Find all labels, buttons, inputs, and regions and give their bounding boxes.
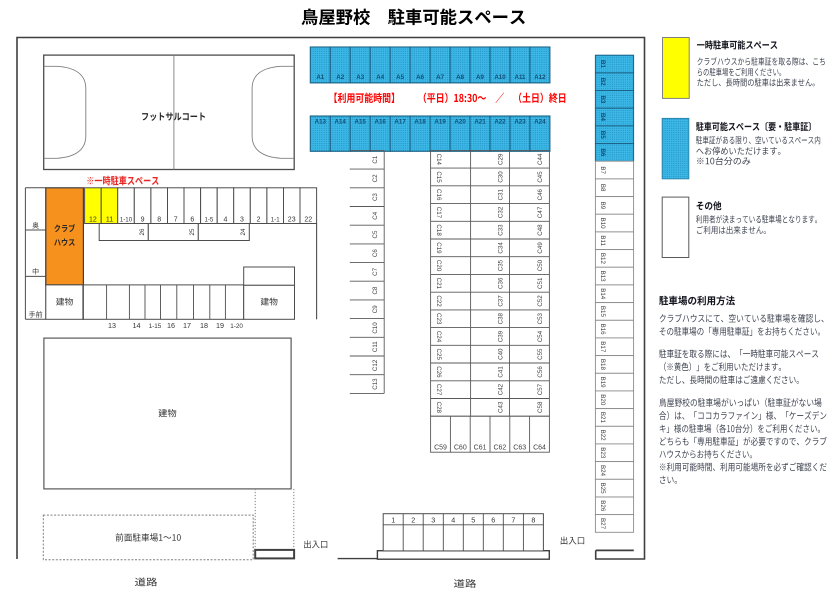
svg-text:B24: B24 (599, 465, 606, 477)
svg-text:C30: C30 (497, 171, 504, 183)
svg-text:23: 23 (288, 216, 296, 223)
svg-text:25: 25 (189, 228, 196, 235)
svg-text:C64: C64 (533, 444, 546, 451)
svg-text:C18: C18 (435, 224, 442, 236)
svg-text:C60: C60 (454, 444, 467, 451)
svg-text:C15: C15 (435, 171, 442, 183)
svg-text:C59: C59 (434, 444, 447, 451)
svg-text:A4: A4 (376, 74, 384, 81)
svg-text:C58: C58 (537, 401, 544, 413)
svg-text:A24: A24 (534, 119, 546, 126)
svg-text:16: 16 (167, 321, 175, 330)
svg-text:C14: C14 (435, 154, 442, 166)
svg-text:A2: A2 (336, 74, 344, 81)
svg-text:C63: C63 (513, 444, 526, 451)
svg-text:A16: A16 (375, 119, 387, 126)
svg-text:B5: B5 (599, 131, 606, 139)
svg-text:C16: C16 (435, 189, 442, 201)
svg-text:6: 6 (491, 515, 495, 524)
svg-text:B26: B26 (599, 500, 606, 512)
svg-text:A5: A5 (396, 74, 404, 81)
svg-text:C62: C62 (493, 444, 506, 451)
svg-text:C10: C10 (372, 322, 379, 334)
svg-text:1-1: 1-1 (271, 216, 280, 223)
svg-text:C1: C1 (372, 155, 379, 163)
svg-text:C27: C27 (435, 384, 442, 396)
svg-text:2: 2 (411, 515, 415, 524)
svg-text:A12: A12 (534, 74, 546, 81)
svg-text:12: 12 (89, 216, 97, 223)
svg-text:C54: C54 (537, 330, 544, 342)
svg-text:A7: A7 (436, 74, 444, 81)
svg-text:B10: B10 (599, 218, 606, 230)
svg-text:13: 13 (108, 321, 116, 330)
svg-text:C32: C32 (497, 206, 504, 218)
svg-text:C20: C20 (435, 260, 442, 272)
svg-text:C24: C24 (435, 331, 442, 343)
svg-text:B3: B3 (599, 95, 606, 103)
svg-text:18: 18 (200, 321, 208, 330)
svg-text:C31: C31 (497, 188, 504, 200)
svg-text:1-15: 1-15 (149, 323, 162, 330)
svg-text:B23: B23 (599, 447, 606, 459)
svg-text:2: 2 (257, 216, 261, 223)
svg-text:A13: A13 (315, 119, 327, 126)
svg-text:C4: C4 (372, 211, 379, 219)
svg-text:C53: C53 (537, 312, 544, 324)
svg-text:C38: C38 (497, 312, 504, 324)
svg-text:A10: A10 (494, 74, 506, 81)
svg-text:C33: C33 (497, 224, 504, 236)
svg-text:C45: C45 (537, 171, 544, 183)
svg-text:B8: B8 (599, 184, 606, 192)
svg-text:B20: B20 (599, 394, 606, 406)
svg-text:B19: B19 (599, 377, 606, 389)
svg-text:B11: B11 (599, 235, 606, 246)
svg-text:C56: C56 (537, 366, 544, 378)
svg-text:B2: B2 (599, 78, 606, 86)
svg-text:C42: C42 (497, 383, 504, 395)
svg-text:A20: A20 (454, 119, 466, 126)
svg-text:1: 1 (391, 515, 395, 524)
svg-text:4: 4 (224, 216, 228, 223)
svg-text:7: 7 (511, 515, 515, 524)
svg-text:C37: C37 (497, 295, 504, 307)
svg-text:C39: C39 (497, 330, 504, 342)
svg-text:B6: B6 (599, 148, 606, 156)
svg-text:C41: C41 (497, 366, 504, 378)
svg-text:C11: C11 (372, 341, 379, 352)
svg-text:A21: A21 (474, 119, 486, 126)
svg-text:8: 8 (157, 216, 161, 223)
svg-text:B7: B7 (599, 166, 606, 174)
svg-text:A3: A3 (356, 74, 364, 81)
svg-text:9: 9 (141, 216, 145, 223)
svg-text:C43: C43 (497, 401, 504, 413)
svg-text:B27: B27 (599, 518, 606, 530)
svg-text:A11: A11 (514, 74, 526, 81)
svg-text:C29: C29 (497, 153, 504, 165)
svg-text:B15: B15 (599, 306, 606, 318)
svg-text:1-5: 1-5 (204, 216, 213, 223)
svg-text:C2: C2 (372, 174, 379, 182)
svg-text:B1: B1 (599, 60, 606, 68)
svg-text:B4: B4 (599, 113, 606, 121)
svg-text:C22: C22 (435, 295, 442, 307)
svg-text:C13: C13 (372, 378, 379, 390)
svg-text:C49: C49 (537, 242, 544, 254)
svg-text:C9: C9 (372, 305, 379, 313)
svg-text:C5: C5 (372, 230, 379, 238)
svg-text:C36: C36 (497, 277, 504, 289)
svg-text:C57: C57 (537, 383, 544, 395)
svg-text:1-20: 1-20 (230, 323, 243, 330)
svg-text:8: 8 (531, 515, 535, 524)
svg-text:B21: B21 (599, 412, 606, 424)
svg-text:19: 19 (216, 321, 224, 330)
svg-text:C40: C40 (497, 348, 504, 360)
svg-text:A9: A9 (476, 74, 484, 81)
svg-text:B14: B14 (599, 288, 606, 300)
svg-text:A8: A8 (456, 74, 464, 81)
svg-text:B25: B25 (599, 483, 606, 495)
svg-text:C48: C48 (537, 224, 544, 236)
svg-text:C50: C50 (537, 259, 544, 271)
svg-text:C52: C52 (537, 295, 544, 307)
svg-text:C35: C35 (497, 259, 504, 271)
svg-text:24: 24 (240, 228, 247, 235)
svg-text:14: 14 (133, 321, 141, 330)
svg-text:B9: B9 (599, 202, 606, 210)
svg-text:7: 7 (174, 216, 178, 223)
svg-text:5: 5 (471, 515, 475, 524)
svg-text:C3: C3 (372, 193, 379, 201)
svg-text:B18: B18 (599, 359, 606, 371)
svg-text:C44: C44 (537, 153, 544, 165)
svg-text:17: 17 (183, 321, 191, 330)
svg-text:C34: C34 (497, 242, 504, 254)
svg-text:B17: B17 (599, 341, 606, 353)
svg-text:A17: A17 (394, 119, 406, 126)
svg-text:C26: C26 (435, 366, 442, 378)
svg-text:B13: B13 (599, 271, 606, 283)
svg-text:11: 11 (106, 216, 113, 223)
svg-text:C55: C55 (537, 348, 544, 360)
svg-text:B12: B12 (599, 253, 606, 265)
svg-text:3: 3 (431, 515, 435, 524)
svg-text:C51: C51 (537, 277, 544, 289)
svg-text:A6: A6 (416, 74, 424, 81)
svg-text:C8: C8 (372, 286, 379, 294)
svg-text:C28: C28 (435, 402, 442, 414)
svg-text:A1: A1 (316, 74, 324, 81)
svg-text:22: 22 (304, 216, 312, 223)
svg-text:C61: C61 (474, 444, 487, 451)
svg-text:26: 26 (139, 228, 146, 235)
svg-text:C17: C17 (435, 207, 442, 219)
svg-text:C23: C23 (435, 313, 442, 325)
svg-text:C21: C21 (435, 278, 442, 290)
svg-text:A18: A18 (414, 119, 426, 126)
svg-text:A19: A19 (434, 119, 446, 126)
svg-text:C25: C25 (435, 349, 442, 361)
svg-text:C7: C7 (372, 267, 379, 275)
svg-text:4: 4 (451, 515, 455, 524)
svg-text:A22: A22 (494, 119, 506, 126)
svg-text:3: 3 (240, 216, 244, 223)
svg-text:A14: A14 (335, 119, 347, 126)
svg-text:B22: B22 (599, 430, 606, 442)
svg-text:C46: C46 (537, 188, 544, 200)
svg-text:B16: B16 (599, 324, 606, 336)
svg-text:C6: C6 (372, 249, 379, 257)
svg-text:A23: A23 (514, 119, 526, 126)
svg-text:6: 6 (190, 216, 194, 223)
svg-text:C19: C19 (435, 242, 442, 254)
svg-text:C12: C12 (372, 359, 379, 371)
svg-text:A15: A15 (355, 119, 367, 126)
svg-text:C47: C47 (537, 206, 544, 218)
svg-text:1-10: 1-10 (120, 216, 133, 223)
